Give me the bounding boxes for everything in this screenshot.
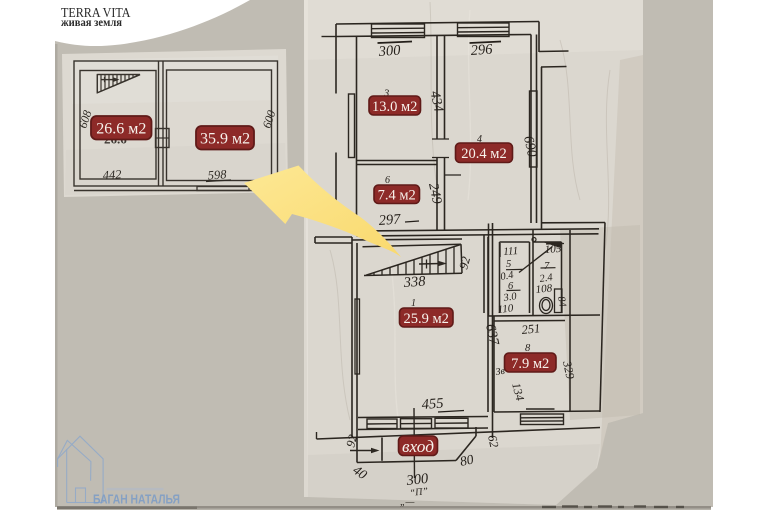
svg-text:35.9 м2: 35.9 м2: [200, 131, 250, 148]
svg-text:300: 300: [377, 42, 402, 60]
svg-text:296: 296: [470, 41, 494, 59]
svg-text:13.0 м2: 13.0 м2: [372, 99, 417, 115]
svg-text:111: 111: [503, 245, 519, 258]
svg-text:„—: „—: [400, 497, 415, 508]
svg-text:110: 110: [497, 302, 514, 316]
svg-text:338: 338: [402, 273, 427, 291]
svg-text:вход: вход: [402, 437, 434, 456]
svg-text:442: 442: [102, 167, 122, 182]
svg-text:26.6 м2: 26.6 м2: [96, 121, 146, 138]
svg-text:108: 108: [535, 282, 553, 296]
svg-text:5: 5: [506, 259, 511, 270]
svg-text:живая земля: живая земля: [61, 15, 122, 29]
svg-text:20.4 м2: 20.4 м2: [461, 146, 506, 162]
svg-text:6: 6: [508, 281, 514, 292]
svg-text:БАГАН НАТАЛЬЯ: БАГАН НАТАЛЬЯ: [93, 492, 180, 507]
svg-text:455: 455: [421, 396, 444, 413]
svg-text:25.9 м2: 25.9 м2: [403, 311, 448, 327]
svg-text:7: 7: [544, 261, 550, 272]
svg-text:297: 297: [378, 211, 402, 229]
svg-text:105: 105: [544, 243, 562, 256]
svg-text:7.4 м2: 7.4 м2: [378, 188, 416, 204]
svg-text:251: 251: [521, 321, 541, 337]
svg-text:7.9 м2: 7.9 м2: [511, 356, 549, 372]
